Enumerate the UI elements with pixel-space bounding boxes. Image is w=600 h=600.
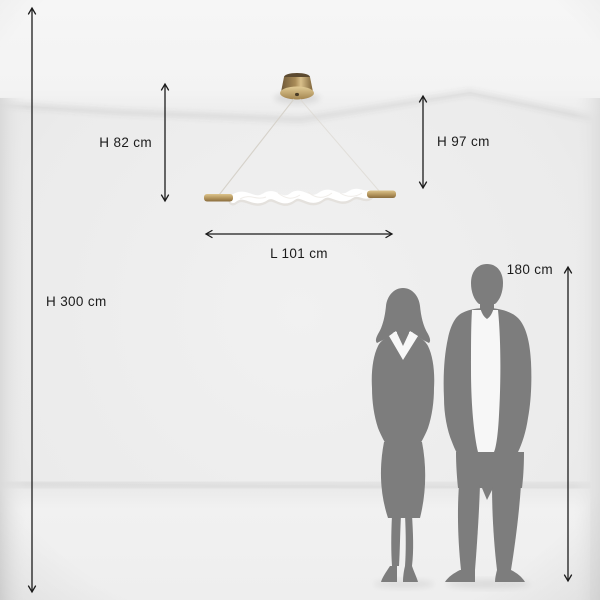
dimension-label-room-height: H 300 cm [46, 294, 107, 310]
dimension-label-lamp-length: L 101 cm [270, 246, 328, 262]
dimension-label-hanging-height-right: H 97 cm [437, 134, 490, 150]
dimension-label-hanging-height-left: H 82 cm [99, 135, 152, 151]
dimension-label-person-height: 180 cm [507, 262, 553, 278]
product-dimension-diagram: H 300 cm H 82 cm H 97 cm L 101 cm 180 cm [0, 0, 600, 600]
